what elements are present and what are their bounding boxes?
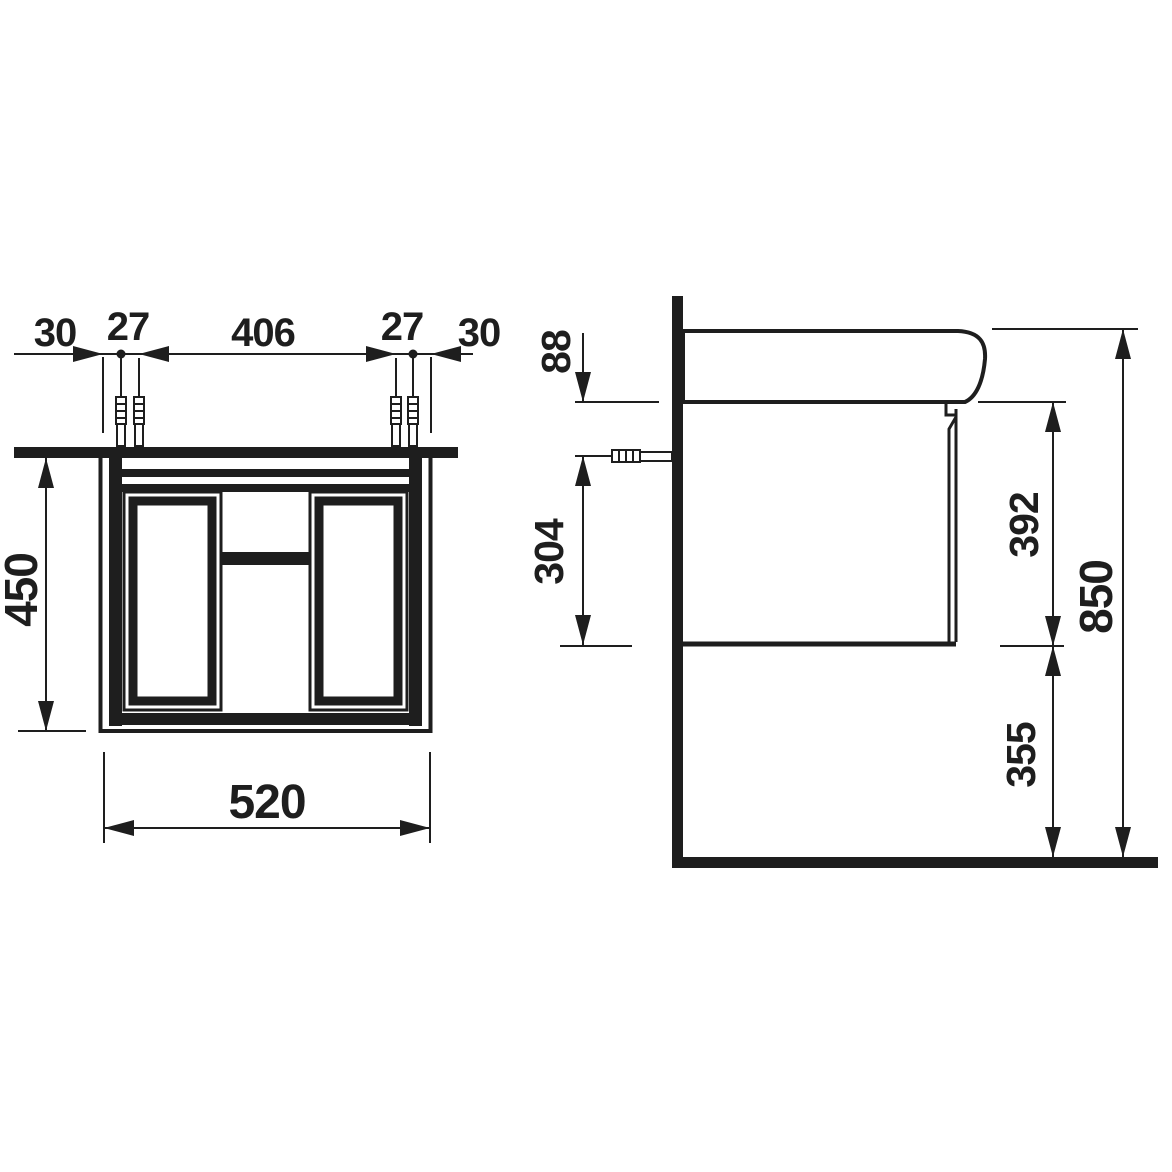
dim-anchor-304: 304: [526, 456, 632, 646]
side-view: 88 304 392 355: [526, 296, 1158, 868]
dim-label-cabinet-height: 392: [1001, 492, 1047, 558]
arrow-right-icon: [73, 346, 103, 362]
dim-label-width: 520: [228, 776, 305, 829]
chain-dot-icon: [409, 350, 418, 359]
dim-label-total-height: 850: [1070, 560, 1122, 634]
cabinet-profile: [683, 404, 956, 644]
washbasin-profile: [683, 331, 985, 402]
arrow-up-icon: [1045, 402, 1061, 432]
center-shelf: [221, 552, 310, 565]
wall-anchor-icon: [134, 397, 144, 446]
wall-anchor-icon: [116, 397, 126, 446]
wall-anchor-icon: [391, 397, 401, 446]
arrow-up-icon: [1045, 646, 1061, 676]
arrow-left-icon: [431, 346, 461, 362]
right-door-frame: [319, 501, 398, 701]
arrow-up-icon: [38, 458, 54, 488]
extension-lines: [103, 357, 431, 433]
floor: [672, 857, 1158, 868]
arrow-down-icon: [1045, 616, 1061, 646]
carcass-bottom: [109, 713, 422, 725]
dim-clearance-355: 355: [998, 646, 1061, 857]
right-door: [310, 492, 407, 710]
front-view: 30 27 406 27 30 450 520: [0, 305, 500, 843]
dim-label-height: 450: [0, 553, 47, 627]
dim-basin-88: 88: [533, 330, 659, 402]
dim-label-floor-clearance: 355: [998, 722, 1044, 788]
dim-height-450: 450: [0, 458, 86, 731]
left-door: [124, 492, 221, 710]
dim-label-right-gap: 27: [381, 305, 424, 349]
dim-label-left-gap: 27: [107, 305, 150, 349]
wall-anchors-front: [116, 397, 418, 446]
arrow-down-icon: [1045, 827, 1061, 857]
arrow-left-icon: [104, 820, 134, 836]
arrow-down-icon: [575, 615, 591, 645]
dim-line: [575, 333, 659, 402]
carcass-right-wall: [409, 458, 422, 726]
arrow-down-icon: [38, 701, 54, 731]
dim-label-left-offset: 30: [34, 311, 77, 355]
arrow-up-icon: [575, 456, 591, 486]
dim-top-chain: 30 27 406 27 30: [14, 305, 500, 433]
arrow-down-icon: [575, 372, 591, 402]
dim-label-anchor-to-bottom: 304: [526, 518, 572, 585]
arrow-down-icon: [1115, 827, 1131, 857]
dimension-drawing: 30 27 406 27 30 450 520: [0, 0, 1172, 1172]
top-rail-upper: [122, 469, 409, 477]
left-door-frame: [133, 501, 212, 701]
drawer-top-lip: [946, 404, 956, 415]
left-door-contour: [124, 492, 221, 710]
technical-drawing-page: 30 27 406 27 30 450 520: [0, 0, 1172, 1172]
dim-label-right-offset: 30: [458, 311, 501, 355]
arrow-right-icon: [400, 820, 430, 836]
dim-label-anchor-span: 406: [231, 311, 295, 355]
dim-label-basin-height: 88: [533, 330, 579, 374]
cabinet-outer-contour: [101, 452, 431, 731]
dim-cabinet-392: 392: [978, 402, 1066, 646]
wall-anchor-icon: [408, 397, 418, 446]
wall-anchor-side-icon: [575, 450, 672, 462]
carcass-left-wall: [109, 458, 122, 726]
right-door-contour: [310, 492, 407, 710]
dim-width-520: 520: [104, 752, 430, 843]
chain-dot-icon: [117, 350, 126, 359]
arrow-up-icon: [1115, 329, 1131, 359]
